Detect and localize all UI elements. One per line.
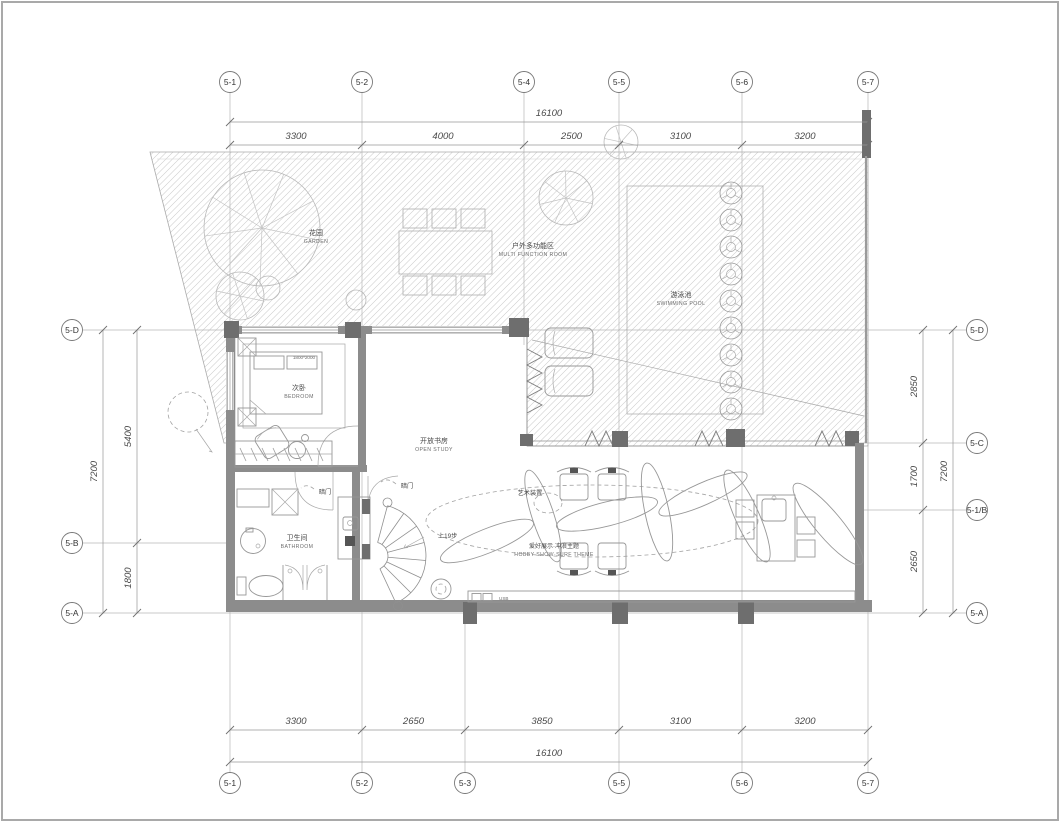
side-table [289, 442, 306, 459]
dimension-label: 1800 [123, 567, 134, 589]
surfboard [716, 465, 779, 566]
hanger [240, 448, 246, 461]
stair-step [384, 566, 411, 593]
grid-bubble-label: 5-7 [862, 77, 875, 87]
stair-steps [378, 506, 426, 603]
grid-bubble-label: 5-D [970, 325, 984, 335]
island-sink [762, 499, 786, 521]
bedroom-door-swing [318, 426, 358, 466]
garden-label-zh: 花园 [309, 228, 323, 237]
stair-curl [383, 498, 392, 507]
grid-bubble-label: 5-1 [224, 77, 237, 87]
study-north-window [372, 326, 502, 333]
grid-bubble-label: 5-2 [356, 77, 369, 87]
dimension-label: 5400 [123, 425, 134, 447]
tree-branch [621, 129, 632, 142]
surfboard-art-installation [426, 461, 871, 573]
east-wall [855, 443, 864, 612]
grid-bubble-label: 5-4 [518, 77, 531, 87]
hanger [306, 448, 312, 461]
hall-furniture [426, 461, 871, 602]
floor-plan-canvas: 1610033004000250031003200330026503850310… [0, 0, 1060, 822]
bed-size-label: 1800*2000 [293, 355, 316, 360]
dimension-label: 2850 [909, 375, 920, 398]
pool-label-en: SWIMMING POOL [657, 301, 706, 307]
dimension-label: 3200 [794, 716, 816, 727]
floor-plan-page: 1610033004000250031003200330026503850310… [0, 0, 1060, 822]
nightstand [238, 338, 256, 356]
grid-bubble-label: 5-6 [736, 778, 749, 788]
spiral-stair [378, 498, 451, 611]
hanger [273, 448, 279, 461]
shower-door-swing [307, 565, 325, 590]
shower-head [318, 569, 322, 573]
hanger [295, 448, 301, 461]
bathroom-label-en: BATHROOM [281, 544, 314, 550]
surfboard [436, 511, 538, 571]
shower-head [288, 569, 292, 573]
bathroom-label-zh: 卫生间 [287, 533, 308, 542]
shower-door-swing [285, 565, 303, 590]
stair-direction-label: 上19步 [438, 532, 457, 540]
column [345, 322, 361, 338]
column [738, 602, 754, 624]
art-zone-outline [426, 485, 758, 557]
dimension-label: 16100 [536, 108, 563, 119]
column [726, 429, 745, 447]
dimension-label: 3100 [670, 716, 692, 727]
column [612, 602, 628, 624]
grid-bubble-label: 5-A [970, 608, 984, 618]
hobby-theme-label-zh: 爱好展示·冲浪主题 [529, 542, 579, 550]
grid-bubble-label: 5-D [65, 325, 79, 335]
grid-bubble-label: 5-5 [613, 778, 626, 788]
hobby-theme-label-en: HOBBY SHOW·SURF THEME [514, 552, 594, 558]
tree-branch [604, 138, 621, 142]
grid-bubble-label: 5-3 [459, 778, 472, 788]
lounge-chair [595, 468, 629, 501]
potted-plant [431, 579, 451, 599]
stair-step [385, 526, 416, 548]
open-study-label-zh: 开放书房 [420, 436, 448, 445]
counter-stove [345, 536, 355, 546]
bedroom-west-window [226, 352, 233, 410]
wardrobe [235, 441, 332, 467]
grid-bubble-label: 5-6 [736, 77, 749, 87]
terrace-hatch-region [150, 152, 868, 446]
multi-function-label-en: MULTI FUNCTION ROOM [499, 252, 568, 258]
toilet [237, 576, 283, 597]
dimension-label: 2650 [402, 716, 425, 727]
stair-direction-arrow [404, 537, 424, 548]
hanger [284, 448, 290, 461]
basin-drain [256, 544, 260, 548]
open-study-label-en: OPEN STUDY [415, 447, 453, 453]
garden-label-en: GARDEN [304, 239, 329, 245]
multi-function-label-zh: 户外多功能区 [512, 241, 554, 250]
grid-bubble-label: 5-5 [613, 77, 626, 87]
armchair [253, 424, 291, 461]
usb-socket [483, 594, 492, 601]
grid-bubble-label: 5-1/B [967, 505, 988, 515]
lounge-chair [595, 543, 629, 576]
bedroom-label-zh: 次卧 [292, 383, 306, 392]
bedroom-north-window [242, 326, 338, 333]
plant-callout [168, 392, 212, 452]
vanity-counter [237, 489, 269, 507]
column [509, 318, 529, 337]
bedroom-east-wall [358, 333, 366, 472]
outdoor-terrace-area [150, 152, 868, 446]
column [612, 431, 628, 447]
lounge-chair [557, 468, 591, 501]
art-installation-label: 艺术装置 [518, 489, 543, 497]
hidden-door-label: 暗门 [401, 482, 413, 490]
bar-stool [797, 540, 815, 557]
column [224, 321, 239, 338]
pool-label-zh: 游泳池 [671, 290, 692, 299]
pillow [254, 356, 284, 369]
stair-step [382, 513, 404, 544]
floor-lamp [302, 435, 309, 442]
hidden-door-leader [301, 486, 314, 489]
bar-stool [736, 522, 754, 539]
bedroom-label-en: BEDROOM [284, 394, 314, 400]
stair-step [387, 562, 421, 578]
plant-callout-bubble [168, 392, 208, 432]
bar-stool [736, 500, 754, 517]
dimension-label: 3200 [794, 131, 816, 142]
tree-branch [616, 126, 621, 142]
usb-label: USB [499, 596, 508, 601]
column [463, 602, 477, 624]
stair-step [380, 569, 396, 603]
dimension-label: 7200 [939, 460, 950, 482]
dimension-label: 3100 [670, 131, 692, 142]
grid-bubble-label: 5-7 [862, 778, 875, 788]
nightstand [238, 408, 256, 426]
dimension-label: 16100 [536, 748, 563, 759]
hidden-doors [295, 472, 398, 510]
grid-bubble-label: 5-A [65, 608, 79, 618]
usb-socket [472, 594, 481, 601]
hidden-door-label: 暗门 [319, 488, 331, 496]
plant-callout-leader [196, 429, 212, 452]
column [520, 434, 533, 446]
bar-island [736, 495, 815, 561]
grid-bubble-label: 5-B [65, 538, 79, 548]
stair-inner-arc [378, 543, 388, 569]
surfboard [518, 467, 569, 565]
hanger [251, 448, 257, 461]
dimension-label: 2650 [909, 550, 920, 573]
dimension-label: 3300 [285, 131, 307, 142]
dimension-label: 1700 [909, 465, 920, 487]
surfboard [635, 461, 679, 564]
surfboard [554, 490, 661, 538]
grid-bubble-label: 5-1 [224, 778, 237, 788]
stair-step [378, 506, 388, 543]
dimension-label: 7200 [89, 460, 100, 482]
shower-partition [283, 565, 327, 600]
grid-bubble-label: 5-2 [356, 778, 369, 788]
dimension-label: 3300 [285, 716, 307, 727]
hidden-door-leader [381, 480, 396, 484]
boundary-wall-stub [862, 110, 871, 158]
washing-machine [272, 489, 298, 515]
grid-bubble-label: 5-C [970, 438, 984, 448]
bed [250, 352, 322, 414]
dimension-label: 4000 [432, 131, 454, 142]
dimension-label: 2500 [560, 131, 583, 142]
stair-step [388, 557, 426, 560]
dimension-label: 3850 [531, 716, 553, 727]
potted-plant-inner [436, 584, 446, 594]
